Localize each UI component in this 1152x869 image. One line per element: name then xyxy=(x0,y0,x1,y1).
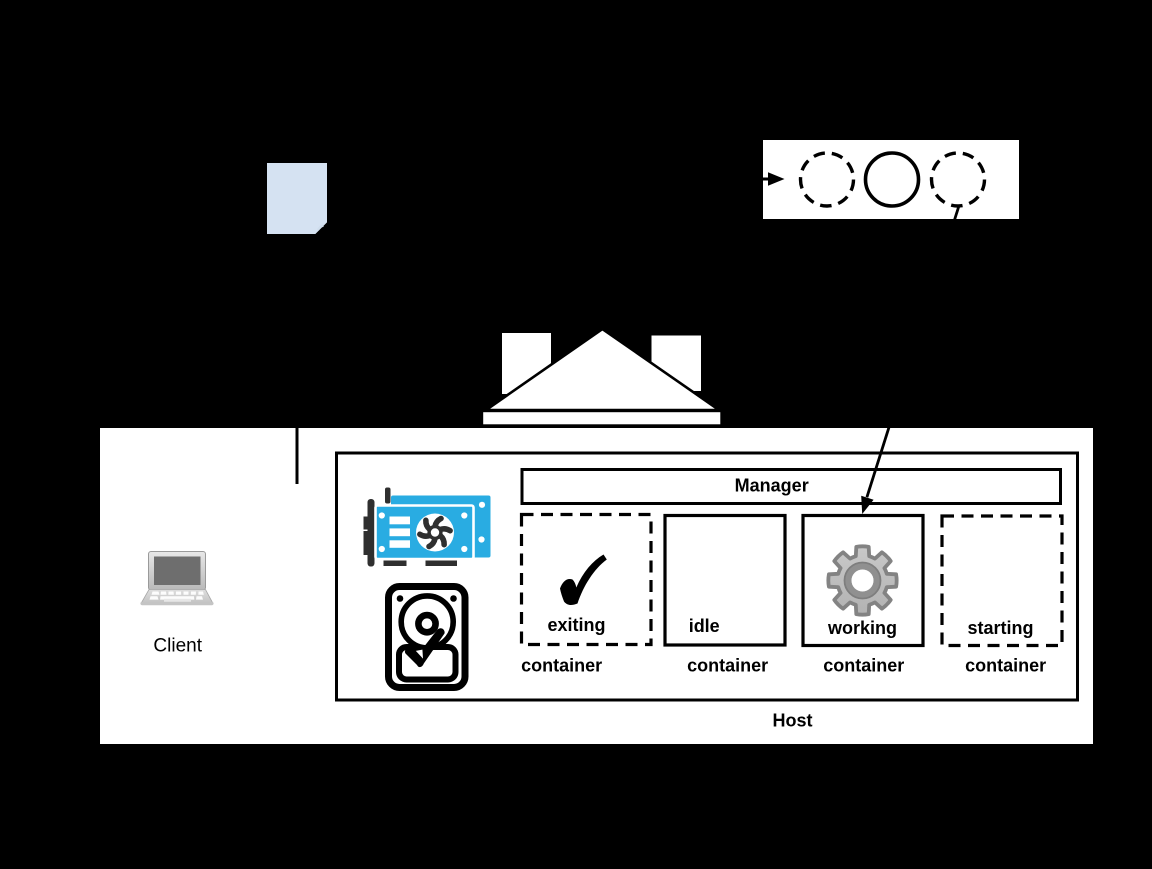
svg-text:Manager: Manager xyxy=(735,476,809,496)
svg-text:exiting: exiting xyxy=(547,615,605,635)
svg-text:working: working xyxy=(827,618,897,638)
svg-text:Client: Client xyxy=(153,636,202,657)
svg-text:starting: starting xyxy=(967,618,1033,638)
svg-text:idle: idle xyxy=(689,616,720,636)
svg-text:container: container xyxy=(521,655,602,675)
svg-text:container: container xyxy=(965,655,1046,675)
svg-text:Host: Host xyxy=(773,711,813,731)
svg-text:container: container xyxy=(687,655,768,675)
svg-text:container: container xyxy=(823,655,904,675)
